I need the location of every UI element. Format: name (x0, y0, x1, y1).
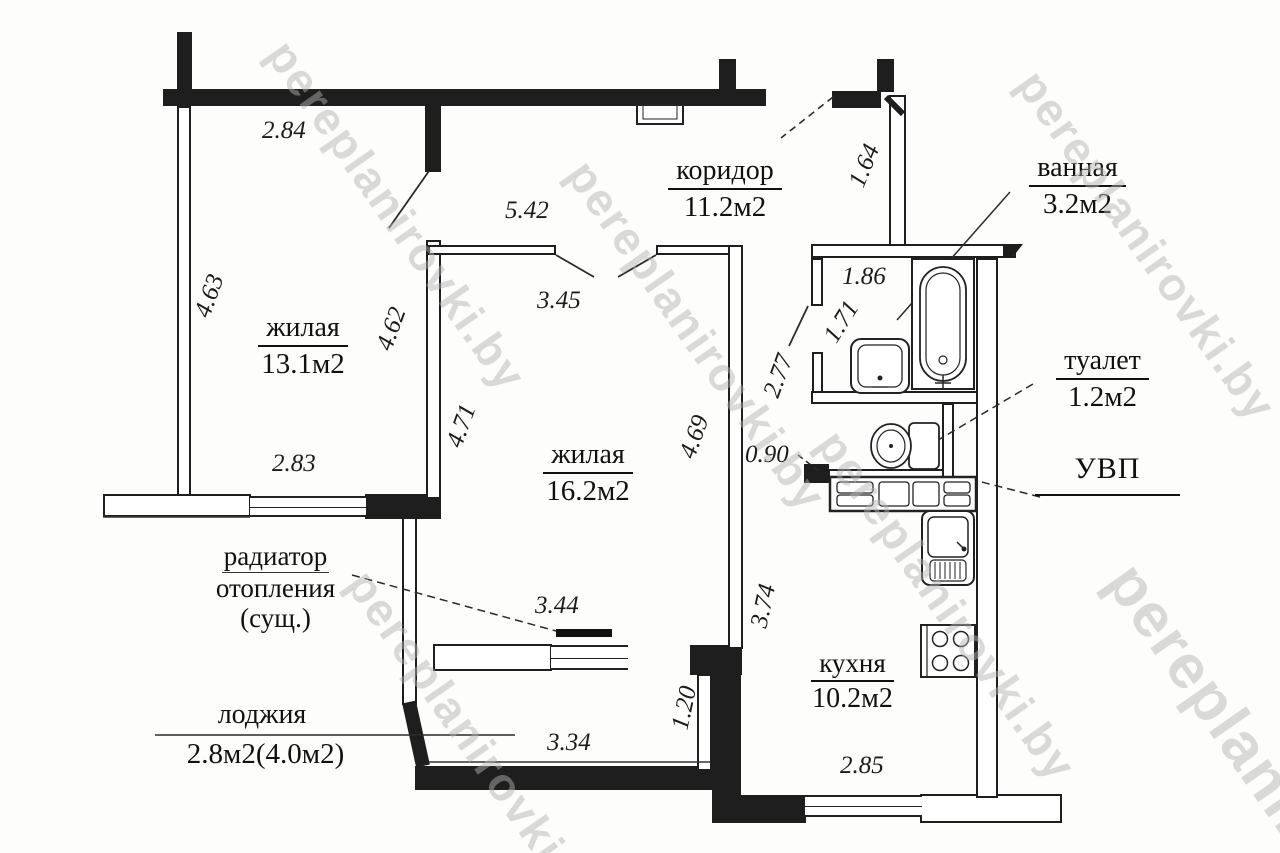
dimension-label: 2.85 (840, 752, 884, 780)
door-swing-line (618, 255, 656, 277)
room-area: 10.2м2 (790, 683, 915, 715)
dimension-label: 2.84 (262, 117, 306, 145)
dimension-label: 3.34 (547, 729, 591, 757)
room-name: ванная (1029, 153, 1126, 187)
bathtub-icon (912, 259, 974, 389)
radiator-label: радиатор отопления (сущ.) (183, 541, 368, 634)
wall (1003, 244, 1023, 258)
wall-chamfer (409, 702, 423, 766)
kitchen-sink-icon (922, 511, 974, 585)
room-area: 3.2м2 (1005, 188, 1150, 221)
toilet-icon (871, 423, 939, 469)
room-label-kitchen: кухня 10.2м2 (790, 649, 915, 716)
stove-icon (921, 625, 975, 677)
uvp-label: УВП (1035, 452, 1180, 496)
room-name: коридор (668, 156, 781, 190)
dimension-label: 1.86 (842, 263, 886, 291)
dimension-label: 0.90 (745, 441, 789, 469)
room-label-loggia-name: лоджия (192, 699, 332, 731)
room-label-loggia-area: 2.8м2(4.0м2) (158, 738, 373, 771)
cabinet-icon (830, 477, 976, 511)
bath-sink-icon (851, 339, 909, 393)
room-name: жилая (543, 440, 633, 474)
radiator-label-line3: (сущ.) (183, 603, 368, 633)
room-name: жилая (258, 313, 348, 347)
dimension-label: 3.44 (535, 592, 579, 620)
room-area: 13.1м2 (233, 348, 373, 381)
room-area: 11.2м2 (645, 191, 805, 224)
floor-plan: жилая 13.1м2 жилая 16.2м2 коридор 11.2м2… (0, 0, 1280, 853)
room-label-living1: жилая 13.1м2 (233, 313, 373, 382)
room-label-living2: жилая 16.2м2 (518, 440, 658, 509)
room-label-bathroom: ванная 3.2м2 (1005, 153, 1150, 222)
room-area: 16.2м2 (518, 475, 658, 508)
door-swing-line (789, 306, 808, 346)
room-area: 1.2м2 (1030, 381, 1175, 414)
leader-line-uvp (970, 479, 1040, 497)
leader-line-toilet (928, 384, 1033, 446)
door-swing-line (556, 255, 594, 277)
room-name: туалет (1056, 346, 1149, 380)
room-label-toilet: туалет 1.2м2 (1030, 346, 1175, 415)
radiator-label-line2: отопления (183, 573, 368, 603)
room-label-corridor: коридор 11.2м2 (645, 156, 805, 225)
leader-line-corridor (781, 97, 833, 138)
leader-line-radiator (352, 575, 556, 631)
wall (886, 97, 903, 114)
dimension-label: 3.45 (537, 287, 581, 315)
room-name: кухня (811, 649, 894, 682)
entrance-box-icon (637, 105, 683, 124)
leader-line-door (798, 455, 820, 472)
dimension-label: 2.83 (272, 450, 316, 478)
dimension-label: 5.42 (505, 197, 549, 225)
door-swing-line (389, 171, 429, 228)
radiator-label-line1: радиатор (222, 541, 329, 573)
